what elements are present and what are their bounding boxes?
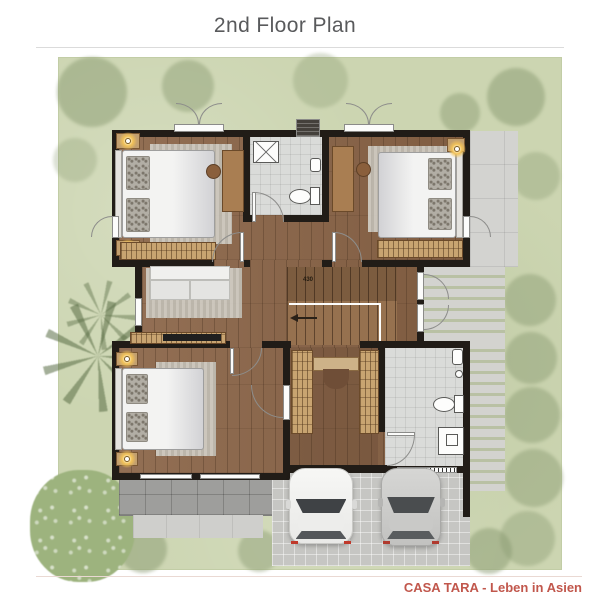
tree bbox=[53, 138, 97, 182]
car-taillight bbox=[383, 541, 390, 544]
tree bbox=[504, 387, 560, 443]
sofa-back bbox=[150, 266, 230, 280]
car-windshield bbox=[387, 497, 435, 513]
toilet-tank bbox=[454, 395, 464, 413]
casement-window bbox=[174, 124, 224, 132]
tv bbox=[163, 334, 221, 341]
terrace bbox=[470, 131, 518, 267]
door-leaf bbox=[112, 216, 119, 238]
page-title: 2nd Floor Plan bbox=[0, 14, 570, 38]
floor-plan-page: 2nd Floor Plan 430 bbox=[0, 0, 600, 600]
car-mirror bbox=[352, 500, 357, 509]
car-taillight bbox=[432, 541, 439, 544]
tree bbox=[440, 93, 480, 133]
wall bbox=[463, 341, 470, 517]
bath-accessory bbox=[455, 370, 463, 378]
shower-drain bbox=[446, 434, 458, 446]
wall bbox=[362, 260, 470, 267]
car-roof bbox=[298, 513, 344, 531]
tree bbox=[487, 68, 545, 126]
pillow bbox=[428, 198, 452, 230]
side-walkway bbox=[470, 341, 505, 491]
wall bbox=[243, 215, 252, 222]
stair-railing bbox=[379, 303, 381, 345]
wall bbox=[378, 348, 385, 432]
wall bbox=[378, 341, 470, 348]
tree bbox=[512, 152, 560, 200]
window bbox=[200, 474, 260, 479]
shower bbox=[253, 141, 279, 163]
sink bbox=[310, 158, 321, 172]
wall bbox=[112, 130, 470, 137]
door-leaf bbox=[230, 348, 234, 374]
bedside-lamp bbox=[119, 132, 137, 150]
pillow bbox=[428, 158, 452, 190]
wall bbox=[283, 420, 290, 465]
bedside-lamp bbox=[118, 350, 136, 368]
pillow bbox=[126, 156, 150, 190]
door-leaf bbox=[252, 192, 256, 222]
watermark-text: CASA TARA - Leben in Asien bbox=[404, 580, 582, 595]
bedside-lamp bbox=[448, 140, 466, 158]
car-mirror bbox=[378, 498, 383, 507]
car-roof bbox=[389, 515, 433, 531]
desk bbox=[222, 150, 244, 212]
wall bbox=[417, 260, 424, 272]
tree bbox=[505, 332, 557, 384]
silver-car bbox=[381, 468, 441, 546]
tree bbox=[504, 274, 556, 326]
window bbox=[135, 298, 142, 326]
white-car bbox=[289, 468, 353, 544]
tree bbox=[162, 60, 214, 112]
wall bbox=[322, 260, 332, 267]
stair-dimension-label: 430 bbox=[303, 277, 313, 283]
stair-arrow-tail bbox=[297, 317, 317, 319]
stair-upper-flight-shade bbox=[287, 267, 397, 301]
door-leaf bbox=[283, 385, 290, 420]
desk-chair bbox=[356, 162, 371, 177]
wall bbox=[463, 238, 470, 267]
toilet-tank bbox=[310, 187, 320, 205]
car-mirror bbox=[286, 500, 291, 509]
pillow bbox=[126, 412, 148, 442]
tree bbox=[500, 511, 555, 566]
stair-railing bbox=[289, 303, 381, 305]
sofa-seat bbox=[150, 280, 230, 300]
wardrobe bbox=[359, 350, 379, 434]
car-windshield bbox=[296, 499, 347, 513]
door-leaf bbox=[463, 216, 470, 238]
wall bbox=[262, 341, 291, 348]
pillow bbox=[126, 198, 150, 232]
bed-headboard bbox=[456, 152, 463, 238]
desk bbox=[332, 146, 354, 212]
casement-window bbox=[344, 124, 394, 132]
wardrobe bbox=[291, 350, 313, 434]
car-taillight bbox=[291, 541, 298, 544]
wall bbox=[283, 348, 290, 385]
car-rear-window bbox=[387, 531, 435, 539]
door-leaf bbox=[332, 232, 336, 262]
car-taillight bbox=[344, 541, 351, 544]
wall bbox=[243, 130, 250, 222]
tree bbox=[293, 53, 348, 108]
door-leaf bbox=[417, 272, 424, 300]
sink bbox=[452, 349, 463, 365]
water-heater-unit bbox=[296, 119, 320, 137]
door-leaf bbox=[240, 232, 244, 262]
dresser bbox=[377, 240, 463, 258]
pillow bbox=[126, 374, 148, 404]
toilet-bowl bbox=[433, 397, 455, 412]
door-leaf bbox=[387, 432, 415, 436]
desk-chair bbox=[206, 164, 221, 179]
bedside-lamp bbox=[118, 450, 136, 468]
footer-divider bbox=[36, 576, 582, 577]
title-divider bbox=[36, 47, 564, 48]
tree bbox=[505, 449, 563, 507]
concrete-pad bbox=[133, 515, 263, 538]
toilet-bowl bbox=[289, 189, 311, 204]
wall bbox=[244, 260, 250, 267]
window bbox=[140, 474, 192, 479]
dresser bbox=[120, 242, 216, 260]
car-rear-window bbox=[296, 531, 347, 539]
bed-headboard bbox=[115, 368, 122, 450]
tree bbox=[57, 57, 127, 127]
wall bbox=[322, 130, 329, 222]
car-mirror bbox=[440, 498, 445, 507]
door-leaf bbox=[417, 304, 424, 332]
palm-tree bbox=[66, 280, 136, 350]
